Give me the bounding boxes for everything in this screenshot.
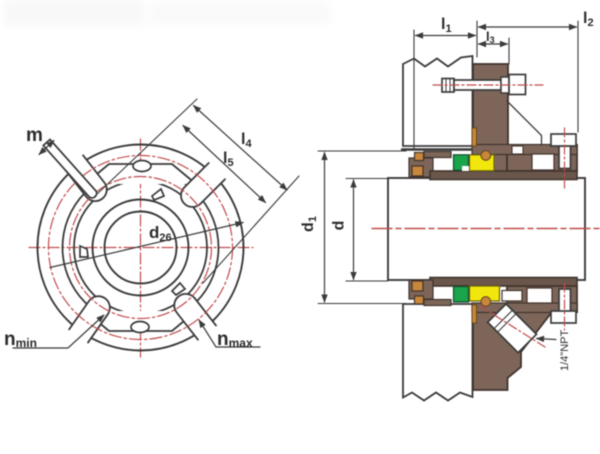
- svg-text:l4: l4: [241, 131, 252, 150]
- svg-text:m: m: [26, 125, 43, 146]
- svg-text:l5: l5: [223, 150, 234, 169]
- svg-text:l1: l1: [441, 16, 452, 35]
- svg-text:l3: l3: [486, 29, 495, 45]
- svg-text:nmin: nmin: [4, 329, 37, 350]
- svg-text:l2: l2: [583, 10, 594, 29]
- svg-text:1/4"NPT: 1/4"NPT: [559, 330, 571, 371]
- svg-text:nmax: nmax: [217, 329, 253, 350]
- svg-text:d26: d26: [149, 223, 172, 244]
- svg-text:d: d: [331, 221, 348, 231]
- svg-text:d1: d1: [300, 216, 319, 232]
